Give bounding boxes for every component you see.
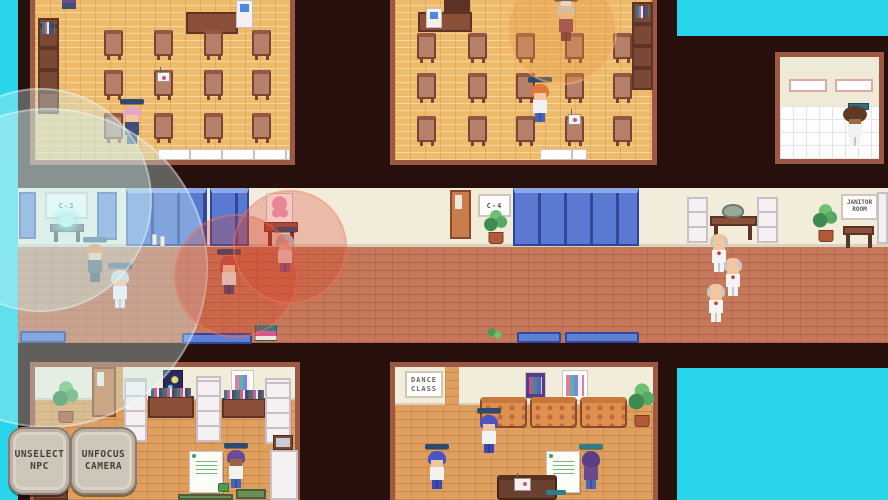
bottle: [160, 236, 165, 247]
easel-screen: [240, 4, 249, 12]
chair: [252, 30, 271, 56]
npc-dance-purple-back[interactable]: [581, 451, 601, 491]
chair: [154, 113, 173, 139]
display-table-legs: [54, 232, 58, 242]
hall-door-blue: [97, 192, 117, 240]
chair: [204, 113, 223, 139]
chair: [613, 33, 632, 59]
chair: [204, 70, 223, 96]
radio: [568, 114, 581, 125]
npc-hall-white-hair[interactable]: [110, 270, 130, 310]
hall-door-orange: [450, 190, 471, 239]
chair: [104, 30, 123, 56]
potted-plant: [483, 210, 509, 244]
mirror: [789, 79, 827, 92]
bookshelf: [632, 2, 653, 90]
outside-top-right: [677, 0, 888, 36]
floor-sprout: [487, 327, 502, 340]
poster-pink-dog: [266, 193, 293, 223]
lockers: [210, 188, 249, 246]
hall-bench: [517, 332, 561, 343]
locker-partial: [19, 192, 36, 239]
chair: [204, 30, 223, 56]
hall-bench: [182, 333, 252, 344]
npc-bathroom-kid[interactable]: [845, 108, 865, 148]
npc-student-purple-hair-girl[interactable]: [226, 450, 246, 490]
chair: [565, 73, 584, 99]
radio: [157, 72, 170, 82]
unselect-npc-button[interactable]: UNSELECT NPC: [8, 427, 71, 495]
npc-student-orange-hair[interactable]: [530, 84, 550, 124]
hall-bench-brown: [843, 226, 874, 235]
filing-cabinet: [757, 197, 778, 243]
chair: [104, 113, 123, 139]
npc-janitor[interactable]: [706, 284, 726, 324]
hallway-floor: [18, 247, 888, 343]
chair: [417, 73, 436, 99]
chair: [417, 116, 436, 142]
unfocus-camera-label-line2: CAMERA: [85, 461, 122, 473]
sign-c3-label: C-3: [59, 202, 75, 210]
red-table-legs: [268, 232, 272, 246]
npc-janitor[interactable]: [723, 258, 743, 298]
couch: [580, 397, 627, 428]
wall-pillar: [445, 367, 459, 405]
npc-dance-blue-hair-boy[interactable]: [427, 451, 447, 491]
unfocus-camera-label-line1: UNFOCUS: [82, 449, 126, 461]
hall-door-white: [877, 192, 888, 244]
book-desk: [222, 398, 266, 418]
glowing-orb: [59, 215, 74, 227]
chair: [252, 113, 271, 139]
poster-dance: [525, 372, 546, 399]
npc-name-bar: [546, 490, 566, 495]
books-row: [151, 388, 191, 397]
unselect-npc-label-line2: NPC: [30, 461, 49, 473]
room-door: [92, 367, 116, 417]
chair: [516, 33, 535, 59]
tv-set: [273, 435, 293, 450]
hall-bench: [565, 332, 639, 343]
chair: [417, 33, 436, 59]
chair: [154, 30, 173, 56]
books-row: [224, 390, 264, 399]
window-strip: [158, 149, 290, 160]
npc-student-pink-hair[interactable]: [122, 106, 142, 146]
cabinet: [196, 376, 221, 442]
sign-c4-label: C-4: [487, 202, 503, 210]
radio: [514, 478, 531, 491]
outside-bottom-right: [677, 368, 888, 500]
npc-hall-red-hair-girl[interactable]: [219, 256, 239, 296]
chair: [468, 33, 487, 59]
window-strip: [540, 149, 587, 160]
book-desk: [148, 396, 194, 418]
lockers: [126, 188, 207, 246]
dance-sign-line1: DANCE: [411, 376, 437, 384]
chair: [613, 116, 632, 142]
tv-stand: [270, 450, 298, 500]
outside-left-strip: [0, 0, 18, 500]
npc-hall-gray-hair-man[interactable]: [275, 234, 295, 274]
couch: [530, 397, 577, 428]
unselect-npc-label-line1: UNSELECT: [15, 449, 65, 461]
bookshelf: [38, 18, 59, 114]
green-bench: [178, 494, 233, 500]
npc-teacher[interactable]: [556, 3, 576, 43]
npc-offscreen-top[interactable]: [62, 0, 76, 9]
hall-bench-legs: [846, 235, 850, 248]
chair: [613, 73, 632, 99]
rock-sculpture: [722, 204, 744, 218]
hall-bench: [20, 331, 66, 343]
game-viewport: C-3 C-4 JANITOR ROOM: [0, 0, 888, 500]
janitor-sign-line2: ROOM: [852, 207, 866, 214]
green-bench: [236, 489, 266, 499]
chair: [104, 70, 123, 96]
sign-dance-class: DANCE CLASS: [405, 371, 443, 398]
lockers: [513, 188, 639, 246]
easel-screen: [430, 12, 438, 19]
potted-plant: [52, 381, 80, 423]
sign-janitor-room: JANITOR ROOM: [841, 194, 878, 220]
filing-cabinet: [687, 197, 708, 243]
npc-hall-orange-girl[interactable]: [85, 244, 105, 284]
npc-dance-blue-hair-boy[interactable]: [479, 415, 499, 455]
mirror: [835, 79, 873, 92]
chair: [252, 70, 271, 96]
unfocus-camera-button[interactable]: UNFOCUS CAMERA: [70, 427, 137, 495]
book-stack: [255, 324, 277, 341]
chair: [468, 116, 487, 142]
dance-sign-line2: CLASS: [411, 385, 437, 393]
potted-plant: [628, 383, 656, 427]
bottle: [152, 234, 157, 245]
chair: [468, 73, 487, 99]
potted-plant: [812, 204, 839, 242]
